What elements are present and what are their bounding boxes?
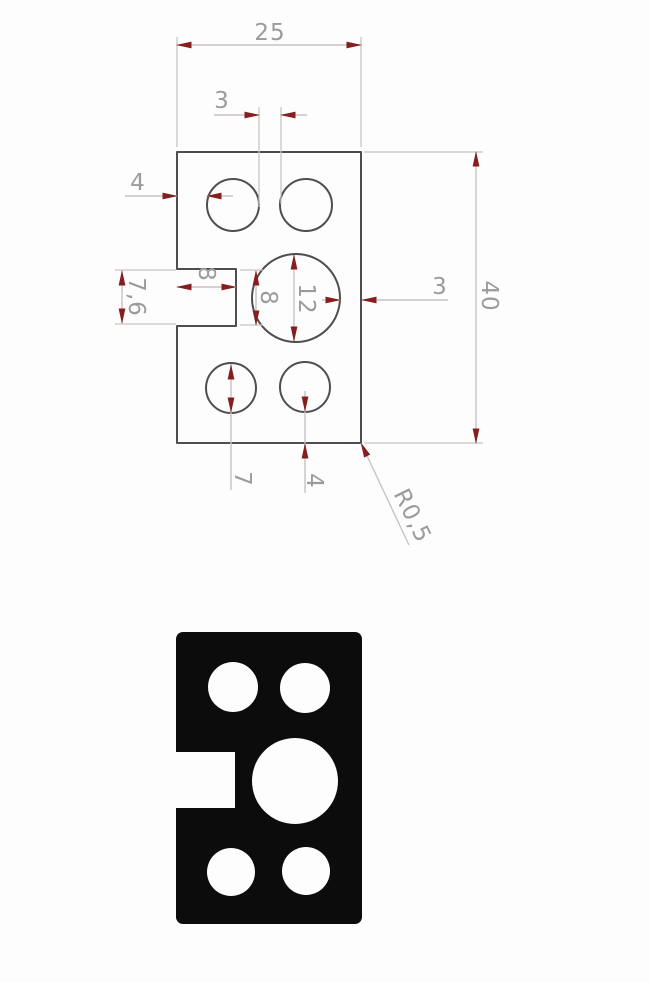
dim-label-top-hole-gap: 3: [214, 88, 230, 114]
drawing-page: 25 3 4 8 7,6 8 12 3 40 7 4 R0,5: [0, 0, 650, 982]
silhouette-hole-bottom-left: [207, 848, 255, 896]
hole-top-right: [280, 179, 332, 231]
dim-label-bottom-hole: 7: [229, 471, 255, 487]
dim-label-height: 40: [476, 280, 502, 311]
dim-label-bottom-gap: 4: [301, 473, 327, 489]
extension-lines: [115, 37, 483, 443]
dim-label-width: 25: [254, 20, 285, 46]
dim-label-notch-height: 7,6: [123, 277, 149, 317]
technical-drawing: 25 3 4 8 7,6 8 12 3 40 7 4 R0,5: [0, 0, 650, 982]
silhouette-hole-top-right: [280, 663, 330, 713]
dim-label-left-edge: 4: [130, 170, 146, 196]
dim-label-right-gap: 3: [432, 274, 448, 300]
hole-top-left: [207, 179, 259, 231]
silhouette-hole-center: [252, 738, 338, 824]
dim-label-notch-width: 8: [193, 266, 219, 282]
dim-label-center-hole: 12: [293, 283, 319, 314]
silhouette-view: [172, 632, 362, 924]
silhouette-hole-top-left: [208, 662, 258, 712]
dim-label-slot-height: 8: [255, 290, 281, 306]
dimension-labels: 25 3 4 8 7,6 8 12 3 40 7 4 R0,5: [123, 20, 502, 547]
silhouette-notch: [172, 752, 235, 808]
silhouette-hole-bottom-right: [282, 847, 330, 895]
dimensioned-view: 25 3 4 8 7,6 8 12 3 40 7 4 R0,5: [115, 20, 502, 547]
